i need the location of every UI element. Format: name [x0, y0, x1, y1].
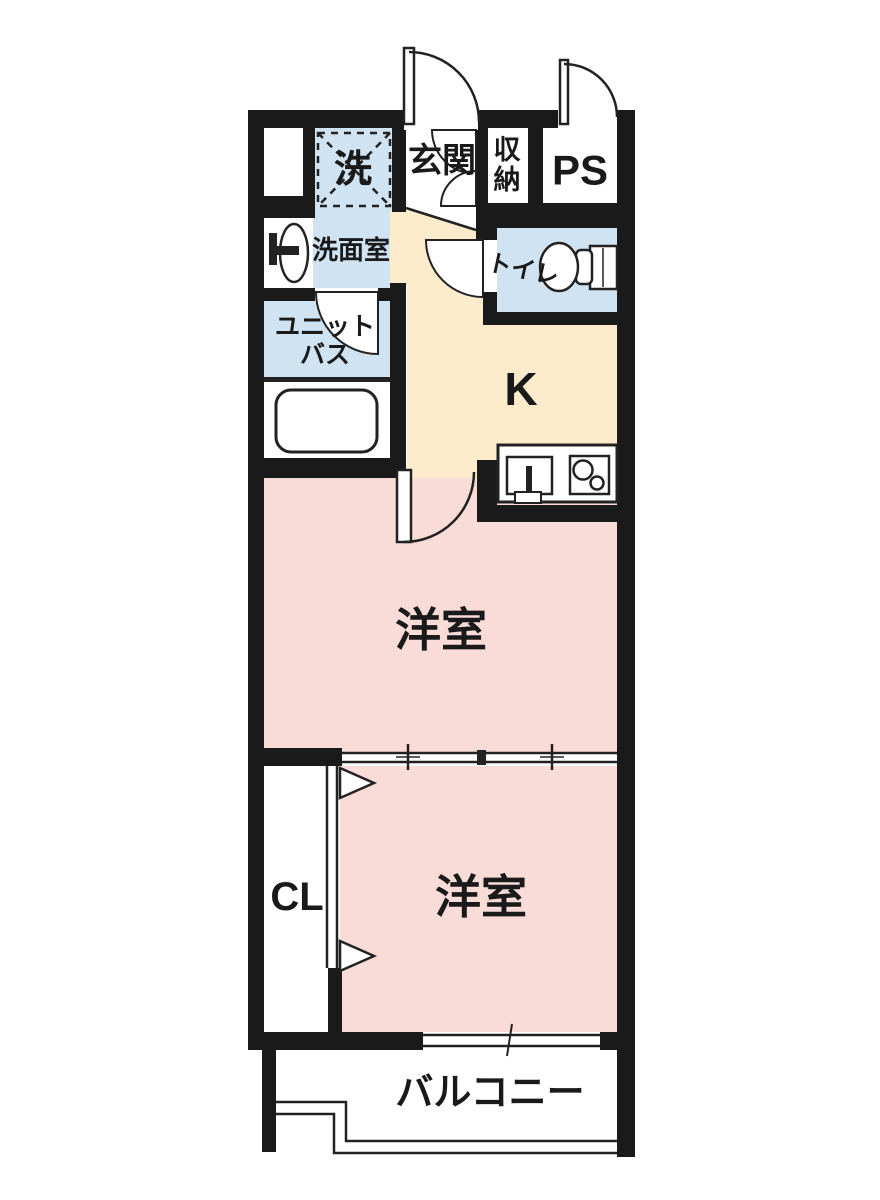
wall — [476, 203, 635, 228]
wall — [617, 110, 635, 1157]
wall — [483, 312, 635, 325]
label-washroom: 洗面室 — [312, 235, 390, 265]
label-closet: CL — [270, 875, 323, 919]
wall — [483, 505, 635, 522]
floorplan-image: 洗 玄関 収 納 PS 洗面室 トイレ ユニット バス K 洋室 CL 洋室 バ… — [0, 0, 880, 1200]
label-storage: 収 — [494, 135, 522, 165]
wall — [528, 128, 543, 215]
label-unit-bath: ユニット — [275, 313, 375, 341]
floorplan-svg: 洗 玄関 収 納 PS 洗面室 トイレ ユニット バス K 洋室 CL 洋室 バ… — [0, 0, 880, 1200]
stove-icon — [570, 456, 609, 494]
wall — [248, 748, 342, 766]
label-entrance: 玄関 — [408, 142, 476, 180]
ps-door-leaf-icon — [560, 60, 568, 124]
wall — [248, 458, 406, 478]
label-unit-bath: バス — [300, 341, 350, 369]
wall — [392, 128, 406, 212]
wall — [600, 1032, 635, 1050]
wall — [262, 1045, 276, 1152]
wall — [483, 228, 497, 242]
wall — [328, 968, 342, 1032]
bath-tub-divider — [264, 377, 390, 382]
label-pipe-space: PS — [552, 147, 608, 194]
label-storage: 納 — [494, 164, 521, 195]
entrance-door-leaf-icon — [404, 48, 414, 124]
label-western-room-upper: 洋室 — [395, 604, 487, 656]
wall — [264, 288, 315, 301]
kitchen-door-leaf-icon — [397, 470, 411, 542]
label-kitchen: K — [504, 363, 537, 415]
label-laundry: 洗 — [334, 149, 372, 191]
wall — [264, 196, 315, 218]
wall — [378, 288, 392, 301]
label-balcony: バルコニー — [395, 1072, 584, 1114]
wall — [303, 128, 315, 203]
washroom-doorway — [390, 210, 407, 285]
wall — [248, 110, 264, 1050]
wall — [390, 283, 406, 478]
bathtub-icon — [276, 390, 377, 452]
label-western-room-lower: 洋室 — [435, 871, 527, 923]
